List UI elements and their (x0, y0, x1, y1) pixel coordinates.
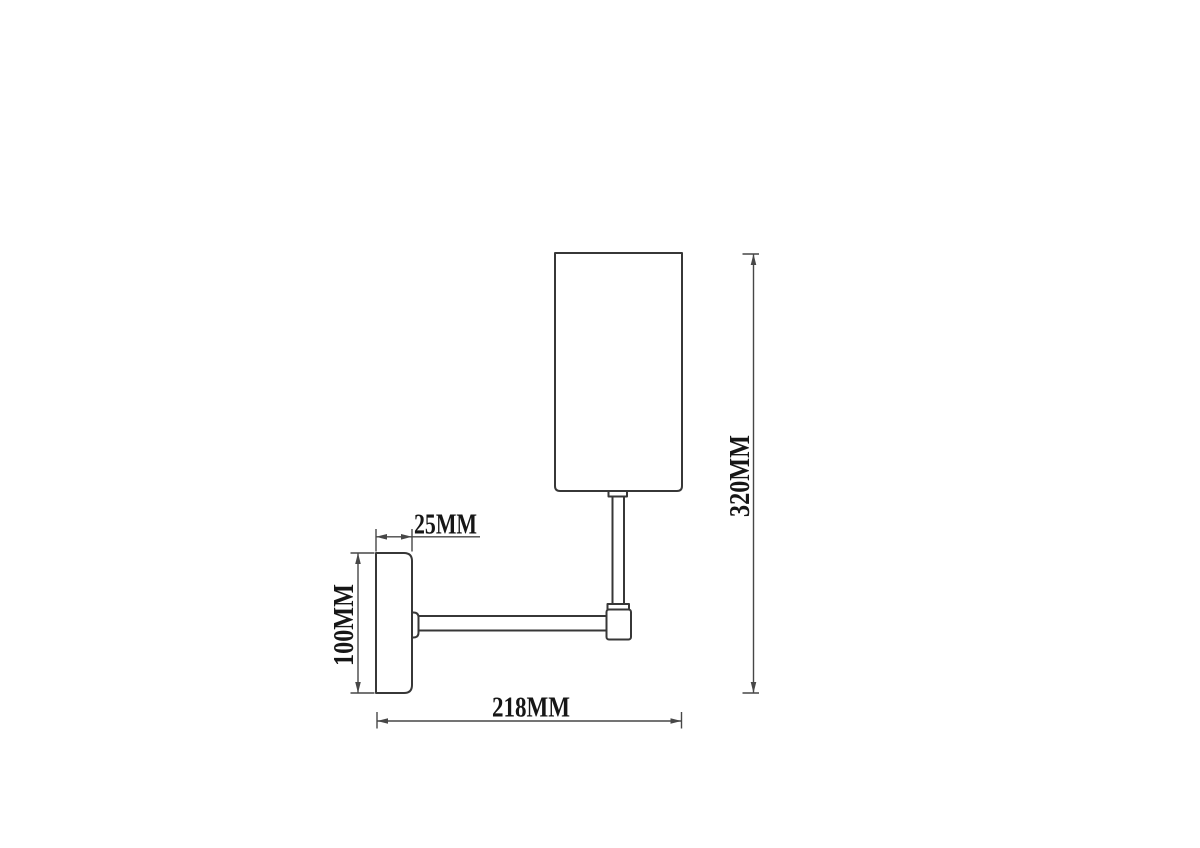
wall-lamp-technical-drawing: 25MM 100MM 218MM 320MM (0, 0, 1200, 848)
arrowhead-top (355, 553, 361, 564)
dimension-label-100mm: 100MM (328, 584, 360, 666)
lamp-arm (418, 616, 608, 631)
dimension-plate-depth: 25MM (376, 509, 480, 552)
arrowhead-bottom (355, 682, 361, 693)
dimension-label-320mm: 320MM (724, 435, 756, 517)
wall-plate (376, 553, 412, 693)
arrowhead-bottom (751, 682, 757, 693)
arrowhead-right (671, 718, 682, 724)
drawing-canvas: 25MM 100MM 218MM 320MM (0, 0, 1200, 848)
dimension-projection: 218MM (377, 692, 682, 729)
arrowhead-left (377, 718, 388, 724)
lamp-shade (555, 253, 682, 491)
elbow-joint-block (607, 610, 632, 640)
arrowhead-right (401, 534, 412, 540)
lamp-stem (613, 496, 625, 606)
dimension-label-25mm: 25MM (414, 509, 477, 541)
lamp-fixture (376, 253, 682, 693)
dimension-overall-height: 320MM (724, 254, 759, 693)
dimension-label-218mm: 218MM (492, 692, 570, 724)
arrowhead-top (751, 254, 757, 265)
arrowhead-left (376, 534, 387, 540)
dimension-plate-height: 100MM (328, 553, 375, 693)
